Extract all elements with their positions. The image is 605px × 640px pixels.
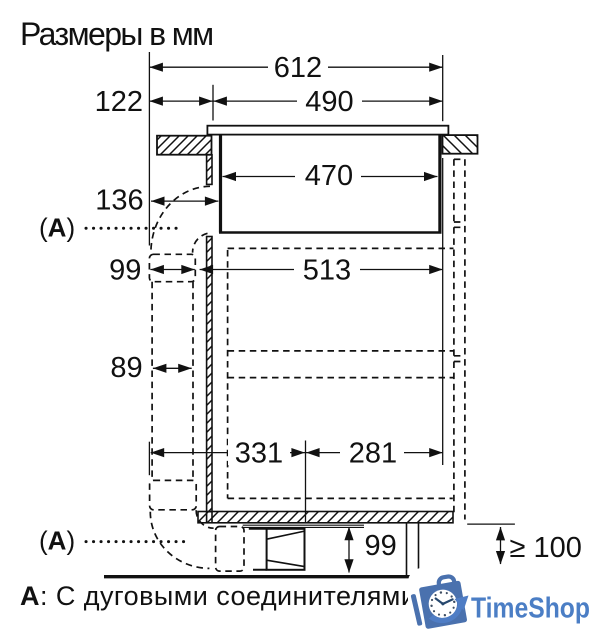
svg-text:Размеры в мм: Размеры в мм — [20, 16, 213, 52]
svg-text:89: 89 — [110, 352, 142, 384]
svg-text:612: 612 — [274, 52, 322, 84]
svg-text:TimeShop: TimeShop — [471, 593, 590, 625]
svg-text:513: 513 — [303, 255, 351, 287]
svg-text:(A): (A) — [39, 212, 75, 242]
svg-text:490: 490 — [305, 86, 353, 118]
svg-text:99: 99 — [365, 530, 397, 562]
svg-text:122: 122 — [95, 86, 143, 118]
svg-text:≥ 100: ≥ 100 — [510, 532, 582, 564]
svg-text:(A): (A) — [39, 526, 75, 556]
svg-text:470: 470 — [305, 160, 353, 192]
svg-text:99: 99 — [109, 255, 141, 287]
svg-text:281: 281 — [349, 438, 397, 470]
svg-text:136: 136 — [95, 184, 143, 216]
svg-text:331: 331 — [235, 438, 283, 470]
svg-text:А: С дуговыми соединителями: А: С дуговыми соединителями — [20, 581, 416, 611]
